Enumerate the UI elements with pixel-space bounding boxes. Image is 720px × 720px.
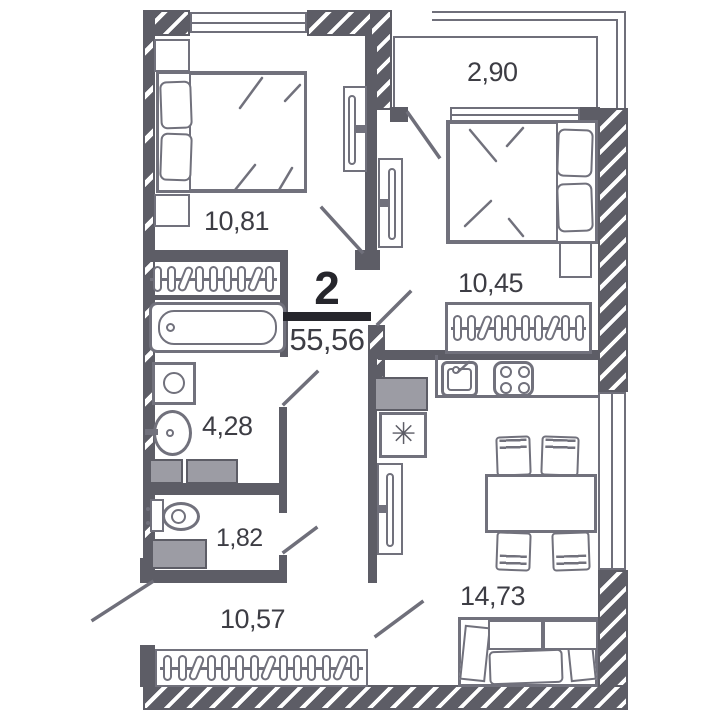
pillow [159, 132, 193, 181]
room-area-balcony: 2,90 [467, 57, 518, 88]
hanger-icon [176, 265, 194, 292]
hanger-icon [350, 655, 359, 681]
door-swing-bedroom2 [378, 292, 410, 324]
wall-right-upper [598, 108, 628, 392]
hanger-icon [178, 655, 187, 681]
room-area-bedroom2: 10,45 [458, 268, 523, 299]
chair [495, 435, 531, 476]
bathroom-cabinet [149, 459, 183, 484]
hanger-icon [279, 655, 288, 681]
tv-icon [388, 168, 396, 240]
hanger-icon [307, 655, 316, 681]
nightstand [559, 242, 592, 278]
room-area-bedroom1: 10,81 [204, 206, 269, 237]
hanger-icon [507, 315, 516, 341]
wall-bedroom1-south [143, 250, 288, 262]
hanger-icon [195, 266, 204, 292]
fridge-symbol: ✳ [391, 420, 416, 450]
burner [518, 382, 530, 394]
door-swing-wc [284, 528, 316, 552]
door-swing-bedroom1 [322, 208, 362, 252]
blanket [448, 122, 558, 242]
door-swing-balcony [408, 113, 439, 157]
hanger-rail [449, 306, 588, 350]
hanger-icon [209, 266, 218, 292]
hanger-icon [246, 265, 264, 292]
window-kitchen [598, 392, 626, 570]
sofa-back-cushion [543, 620, 598, 650]
sink-tap-dot [166, 429, 174, 437]
plan-summary: 2 55,56 [283, 266, 371, 358]
wall-bottom [143, 685, 628, 710]
hanger-icon [223, 266, 232, 292]
pillow [556, 182, 594, 232]
counter-edge-left [435, 355, 438, 398]
window-bedroom1 [190, 12, 307, 33]
hanger-icon [250, 655, 259, 681]
hanger-icon [453, 315, 462, 341]
tv-stand [378, 505, 387, 513]
hanger-rail-hall [148, 262, 279, 295]
floor-plan: ✳ [0, 0, 720, 720]
blanket [189, 73, 306, 191]
room-area-hallway: 10,57 [220, 604, 285, 635]
hanger-icon [235, 655, 244, 681]
room-area-wc: 1,82 [216, 524, 263, 553]
door-swing-bathroom [284, 372, 317, 404]
pillow [556, 128, 594, 177]
kitchen-counter-block [374, 377, 428, 411]
opening-living [376, 602, 422, 636]
hanger-rail-corridor [158, 652, 365, 684]
burner [518, 366, 530, 378]
bathtub-inner [158, 310, 277, 345]
hanger-icon [467, 315, 476, 341]
faucet-dot [452, 366, 460, 374]
hanger-icon [534, 315, 543, 341]
hanger-icon [163, 655, 172, 681]
bathroom-cabinet [186, 459, 238, 484]
hanger-icon [494, 315, 503, 341]
chair [551, 531, 590, 571]
hanger-icon [167, 266, 176, 292]
nightstand [154, 194, 190, 227]
balcony-door-jamb [390, 107, 408, 122]
chair [495, 531, 531, 571]
bathtub-drain [166, 323, 175, 332]
hanger-icon [332, 654, 350, 681]
rooms-count: 2 [283, 266, 371, 310]
sofa-seat-cushion [488, 649, 563, 686]
hanger-icon [260, 654, 278, 681]
room-area-bathroom: 4,28 [202, 411, 253, 442]
dining-table [485, 474, 597, 533]
hanger-icon [221, 655, 230, 681]
door-swing-entry [93, 582, 152, 620]
wall-bathroom-east [279, 407, 287, 513]
toilet-dot [146, 507, 150, 511]
hanger-icon [575, 315, 584, 341]
hanger-icon [543, 314, 561, 341]
sofa-back-cushion [488, 620, 543, 650]
tv-stand [380, 199, 389, 207]
nightstand [154, 39, 190, 72]
hanger-icon [476, 314, 494, 341]
toilet-dot [146, 521, 150, 525]
hanger-icon [153, 266, 162, 292]
burner [500, 366, 512, 378]
hanger-icon [265, 266, 274, 292]
washing-machine-drum [163, 372, 185, 394]
corridor-closet-block [140, 645, 155, 687]
tv-icon [386, 473, 394, 547]
total-area: 55,56 [283, 322, 371, 358]
hanger-icon [322, 655, 331, 681]
closet-divider-line [145, 295, 285, 300]
tv-stand [355, 125, 365, 133]
hanger-icon [207, 655, 216, 681]
chair [540, 435, 579, 476]
room-area-kitchen-living: 14,73 [460, 581, 525, 612]
pillow [159, 80, 193, 129]
hanger-icon [188, 654, 206, 681]
wall-bath-wc-divider [143, 483, 285, 495]
toilet-bowl [171, 509, 186, 524]
sink-tap [145, 429, 158, 435]
burner [500, 382, 512, 394]
hanger-icon [293, 655, 302, 681]
hanger-icon [561, 315, 570, 341]
wall-wc-south [143, 570, 285, 583]
hanger-icon [237, 266, 246, 292]
wc-cabinet [151, 539, 207, 569]
hanger-icon [521, 315, 530, 341]
